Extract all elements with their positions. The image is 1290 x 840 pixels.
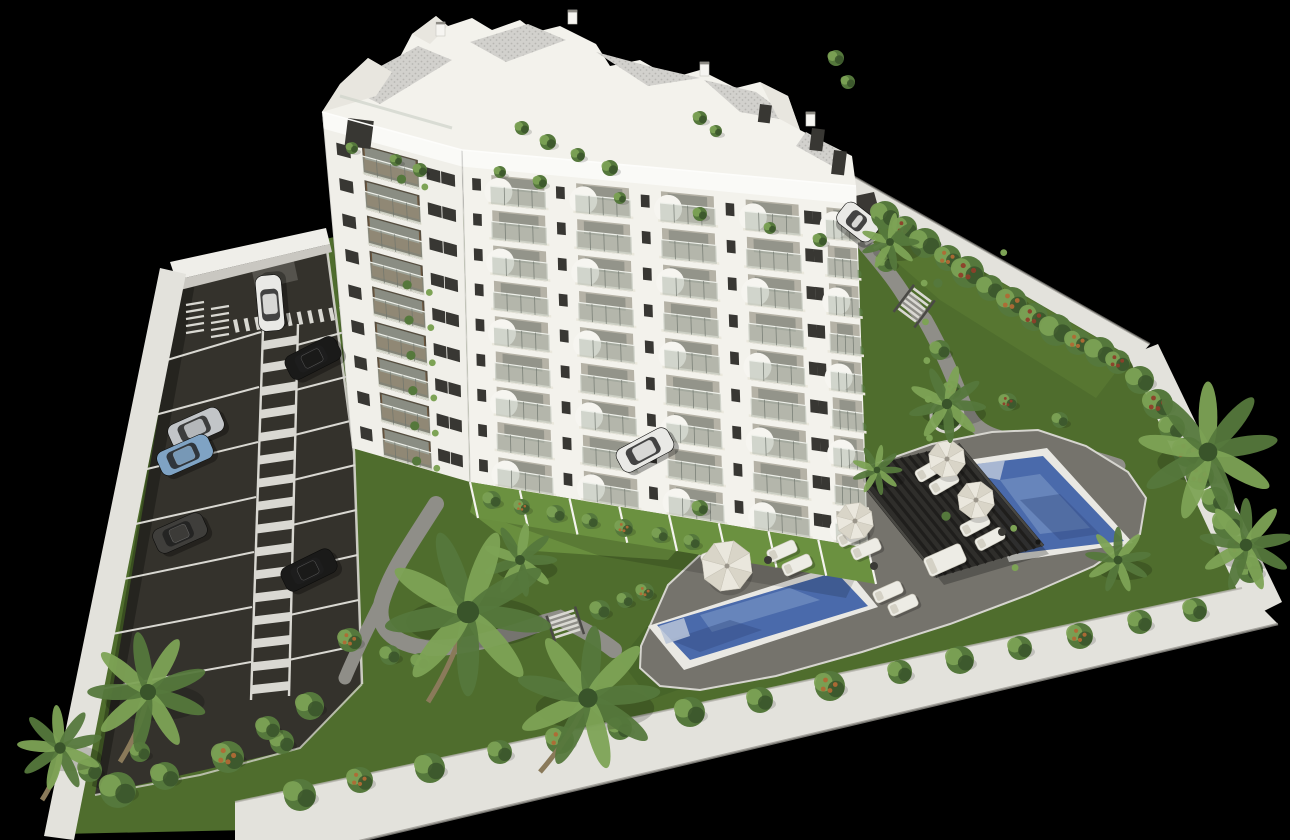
palm-crown — [874, 467, 881, 474]
shrub-flowers — [1074, 629, 1078, 633]
railing-mullion — [620, 307, 621, 325]
railing-mullion — [680, 425, 681, 443]
balcony-plant — [433, 465, 440, 472]
shrub-foliage — [539, 180, 547, 188]
shrub-flowers — [619, 528, 622, 531]
balcony-plant — [1012, 564, 1019, 571]
shrub-flowers — [1010, 304, 1015, 309]
shrub-flowers — [971, 268, 976, 273]
window — [814, 249, 823, 263]
shrub-flowers — [551, 741, 555, 745]
penthouse-window — [809, 128, 825, 151]
window — [813, 475, 822, 489]
shrub-foliage — [115, 784, 135, 804]
railing-mullion — [691, 316, 692, 334]
shrub-flowers — [362, 777, 366, 781]
shrub-flowers — [950, 255, 954, 259]
shrub-flowers — [1072, 335, 1076, 339]
side-table — [764, 556, 772, 564]
window — [808, 324, 817, 338]
railing-mullion — [623, 416, 624, 434]
shrub-flowers — [1003, 303, 1008, 308]
balcony-plant — [1010, 525, 1017, 532]
palm-crown — [886, 238, 894, 246]
shrub-flowers — [218, 758, 223, 763]
railing-mullion — [695, 464, 696, 482]
railing-mullion — [709, 466, 710, 484]
railing-mullion — [708, 429, 709, 447]
balcony-plant — [404, 316, 413, 325]
shrub-foliage — [688, 707, 705, 724]
shrub-flowers — [521, 508, 524, 511]
shrub-flowers — [1028, 309, 1032, 313]
shrub-flowers — [1072, 637, 1076, 641]
window — [645, 340, 654, 354]
window — [641, 195, 650, 208]
shrub-flowers — [1151, 396, 1156, 401]
shrub-flowers — [221, 748, 226, 753]
window — [642, 231, 651, 244]
shrub-flowers — [517, 507, 520, 510]
shrub-flowers — [899, 221, 903, 225]
shrub-flowers — [1010, 400, 1013, 403]
shrub-flowers — [1005, 294, 1010, 299]
palm-crown — [1240, 539, 1252, 551]
shrub-flowers — [640, 592, 643, 595]
window — [559, 294, 568, 307]
shrub-flowers — [1004, 397, 1007, 400]
penthouse-window — [758, 104, 772, 123]
window — [557, 222, 566, 235]
shrub-flowers — [352, 637, 356, 641]
railing-mullion — [692, 353, 693, 371]
shrub-flowers — [225, 759, 230, 764]
window — [809, 362, 818, 376]
shrub-foliage — [1193, 606, 1206, 619]
shrub-flowers — [828, 688, 833, 693]
balcony-plant — [933, 278, 942, 287]
balcony-plant — [1000, 249, 1007, 256]
railing-mullion — [704, 281, 705, 299]
shrub-foliage — [491, 497, 501, 507]
shrub-flowers — [833, 682, 838, 687]
shrub-foliage — [163, 771, 178, 786]
window — [472, 178, 481, 191]
window — [735, 500, 744, 514]
window — [810, 399, 819, 413]
shrub-foliage — [589, 518, 598, 527]
railing-mullion — [622, 380, 623, 398]
shrub-foliage — [389, 652, 400, 663]
site-plan-rendering — [0, 0, 1290, 840]
shrub-flowers — [1025, 318, 1029, 322]
window — [479, 459, 488, 472]
shrub-foliage — [699, 212, 707, 220]
shrub-flowers — [348, 642, 352, 646]
palm-crown — [578, 688, 597, 707]
window — [474, 248, 483, 261]
side-table — [870, 562, 878, 570]
balcony-plant — [427, 324, 434, 331]
shrub-flowers — [620, 523, 623, 526]
window — [643, 267, 652, 280]
shrub-foliage — [308, 701, 323, 716]
shrub-flowers — [1112, 355, 1116, 359]
shrub-flowers — [823, 678, 828, 683]
window — [476, 319, 485, 332]
shrub-foliage — [715, 129, 722, 136]
shrub-flowers — [623, 529, 626, 532]
shrub-flowers — [231, 753, 236, 758]
balcony-plant — [421, 184, 428, 191]
shrub-flowers — [344, 633, 348, 637]
shrub-foliage — [419, 168, 427, 176]
shrub-flowers — [1111, 362, 1115, 366]
railing-mullion — [621, 344, 622, 362]
shrub-foliage — [619, 196, 626, 203]
shrub-foliage — [547, 139, 556, 148]
window — [564, 473, 573, 487]
shrub-flowers — [940, 259, 944, 263]
shrub-flowers — [1116, 364, 1120, 368]
window — [560, 329, 569, 342]
balcony-plant — [430, 395, 437, 402]
window — [819, 401, 828, 415]
shrub-flowers — [946, 260, 950, 264]
window — [726, 203, 735, 217]
railing-mullion — [618, 235, 619, 253]
balcony-plant — [412, 456, 421, 465]
shrub-foliage — [395, 158, 402, 165]
shrub-flowers — [1080, 339, 1084, 343]
shrub-foliage — [847, 80, 855, 88]
shrub-flowers — [1076, 344, 1080, 348]
balcony-plant — [429, 359, 436, 366]
palm-crown — [140, 684, 156, 700]
palm-crown — [1199, 443, 1218, 462]
balcony-plant — [921, 280, 928, 287]
shrub-foliage — [835, 55, 844, 64]
chimney-cap — [436, 22, 445, 24]
palm-crown — [515, 555, 525, 565]
shrub-foliage — [280, 738, 293, 751]
shrub-flowers — [1120, 359, 1124, 363]
shrub-flowers — [1007, 403, 1010, 406]
window — [649, 486, 658, 500]
window — [806, 286, 815, 300]
palm-crown — [942, 399, 952, 409]
railing-mullion — [677, 315, 678, 333]
shrub-foliage — [769, 226, 776, 233]
window — [473, 213, 482, 226]
window — [476, 354, 485, 367]
railing-mullion — [706, 355, 707, 373]
shrub-foliage — [298, 789, 316, 807]
railing-mullion — [707, 392, 708, 410]
balcony-plant — [426, 289, 433, 296]
car-roof — [262, 293, 278, 314]
shrub-flowers — [1082, 633, 1086, 637]
shrub-flowers — [358, 782, 362, 786]
shrub-foliage — [555, 511, 565, 521]
shrub-flowers — [343, 640, 347, 644]
shrub-foliage — [266, 724, 279, 737]
render-viewport — [0, 0, 1290, 840]
shrub-flowers — [1070, 343, 1074, 347]
shrub-foliage — [351, 146, 358, 153]
shrub-flowers — [1032, 319, 1036, 323]
shrub-flowers — [958, 273, 963, 278]
balcony-plant — [922, 318, 929, 325]
shrub-flowers — [1003, 402, 1006, 405]
shrub-foliage — [691, 539, 700, 548]
shrub-foliage — [521, 126, 529, 134]
window — [556, 186, 565, 199]
railing-mullion — [693, 390, 694, 408]
side-table — [998, 528, 1006, 536]
window — [563, 437, 572, 451]
railing-mullion — [705, 318, 706, 336]
window — [731, 389, 740, 403]
shrub-flowers — [965, 274, 970, 279]
window — [644, 304, 653, 318]
window — [728, 277, 737, 291]
shrub-flowers — [524, 505, 527, 508]
railing-mullion — [690, 279, 691, 297]
shrub-flowers — [1037, 313, 1041, 317]
palm-crown — [457, 601, 479, 623]
balcony-plant — [406, 351, 415, 360]
shrub-foliage — [577, 153, 585, 161]
railing-mullion — [682, 498, 683, 516]
window — [732, 426, 741, 440]
balcony-plant — [397, 175, 406, 184]
shrub-flowers — [644, 593, 647, 596]
window — [804, 210, 813, 224]
shrub-flowers — [961, 263, 966, 268]
shrub-foliage — [624, 597, 633, 606]
shrub-foliage — [498, 748, 511, 761]
chimney-cap — [806, 112, 815, 114]
shrub-foliage — [758, 695, 772, 709]
shrub-flowers — [647, 590, 650, 593]
window — [821, 476, 830, 490]
balcony-plant — [941, 512, 950, 521]
shrub-flowers — [821, 687, 826, 692]
railing-mullion — [679, 388, 680, 406]
window — [646, 377, 655, 391]
shrub-foliage — [428, 763, 445, 780]
window — [558, 258, 567, 271]
railing-mullion — [674, 204, 675, 222]
shrub-foliage — [1059, 417, 1068, 426]
shrub-foliage — [699, 116, 707, 124]
window — [730, 351, 739, 365]
chimney-cap — [568, 10, 577, 12]
shrub-flowers — [1015, 298, 1020, 303]
balcony-plant — [410, 421, 419, 430]
window — [733, 463, 742, 477]
shrub-flowers — [641, 587, 644, 590]
railing-mullion — [689, 243, 690, 261]
railing-mullion — [625, 489, 626, 507]
shrub-foliage — [499, 170, 506, 177]
window — [477, 389, 486, 402]
shrub-flowers — [1078, 638, 1082, 642]
railing-mullion — [694, 427, 695, 445]
shrub-foliage — [659, 532, 668, 541]
window — [729, 314, 738, 328]
railing-mullion — [675, 241, 676, 259]
balcony-plant — [432, 430, 439, 437]
window — [811, 437, 820, 451]
car-white — [254, 271, 290, 332]
shrub-foliage — [898, 668, 911, 681]
railing-mullion — [688, 206, 689, 224]
balcony-plant — [408, 386, 417, 395]
railing-mullion — [619, 271, 620, 289]
shrub-foliage — [958, 655, 973, 670]
railing-mullion — [676, 278, 677, 296]
railing-mullion — [681, 461, 682, 479]
railing-mullion — [703, 244, 704, 262]
window — [816, 325, 825, 339]
window — [805, 248, 814, 262]
palm-crown — [54, 742, 65, 753]
shrub-foliage — [699, 505, 708, 514]
shrub-flowers — [626, 526, 629, 529]
shrub-flowers — [1156, 406, 1161, 411]
palm-crown — [1114, 556, 1123, 565]
balcony-plant — [403, 280, 412, 289]
window — [727, 240, 736, 254]
railing-mullion — [678, 351, 679, 369]
window — [814, 513, 823, 527]
shrub-foliage — [609, 165, 618, 174]
window — [475, 283, 484, 296]
window — [647, 413, 656, 427]
window — [478, 424, 487, 437]
shrub-foliage — [599, 607, 610, 618]
shrub-flowers — [354, 773, 358, 777]
shrub-foliage — [1138, 618, 1151, 631]
balcony-plant — [923, 357, 930, 364]
pergola-post — [1035, 539, 1040, 544]
shrub-flowers — [942, 251, 946, 255]
chimney-cap — [700, 62, 709, 64]
window — [562, 401, 571, 414]
shrub-flowers — [352, 781, 356, 785]
shrub-foliage — [939, 347, 950, 358]
window — [561, 365, 570, 378]
shrub-foliage — [1018, 644, 1031, 657]
shrub-flowers — [518, 503, 521, 506]
shrub-flowers — [1149, 405, 1154, 410]
shrub-flowers — [554, 732, 558, 736]
shrub-foliage — [1138, 375, 1153, 390]
shrub-foliage — [819, 238, 827, 246]
